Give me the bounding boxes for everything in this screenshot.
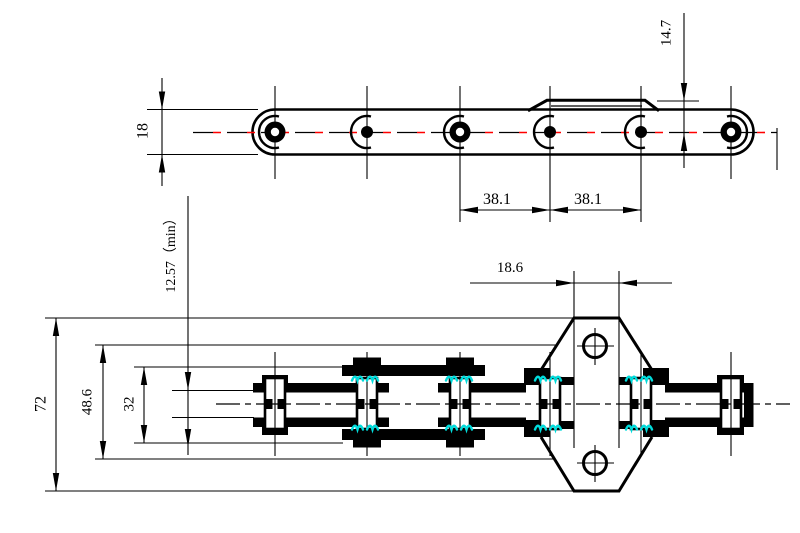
dimension-18.6: 18.6 — [470, 260, 672, 286]
dimension-12.57-min: 12.57（min） — [163, 196, 191, 455]
dim-label-38.1-b: 38.1 — [574, 191, 602, 208]
arrow-up-icon — [53, 318, 59, 336]
dim-label-14.7: 14.7 — [658, 19, 674, 46]
arrow-down-icon — [185, 429, 191, 447]
arrow-left-icon — [550, 207, 568, 213]
arrow-left-icon — [619, 280, 637, 286]
side-view: 18 14.7 38.1 38.1 — [135, 13, 777, 222]
dimension-48.6: 48.6 — [79, 345, 106, 459]
dim-label-18: 18 — [135, 123, 152, 139]
arrow-up-icon — [141, 367, 147, 385]
dim-label-18.6: 18.6 — [497, 260, 524, 276]
dim-label-48.6: 48.6 — [79, 388, 95, 415]
technical-drawing: 18 14.7 38.1 38.1 — [0, 0, 800, 533]
dimension-72: 72 — [33, 318, 60, 491]
arrow-up-icon — [100, 345, 106, 363]
arrow-down-icon — [141, 425, 147, 443]
arrow-right-icon — [532, 207, 550, 213]
dim-label-32: 32 — [121, 397, 137, 412]
arrow-left-icon — [460, 207, 478, 213]
arrow-up-icon — [159, 155, 165, 173]
chain-plan-links — [253, 358, 754, 448]
arrow-down-icon — [100, 441, 106, 459]
arrow-up-icon — [681, 133, 687, 151]
arrow-down-icon — [185, 372, 191, 390]
dimension-18: 18 — [135, 78, 166, 186]
arrow-right-icon — [623, 207, 641, 213]
dimension-14.7: 14.7 — [658, 13, 687, 168]
arrow-down-icon — [159, 92, 165, 110]
arrow-right-icon — [556, 280, 574, 286]
plan-view: 72 48.6 32 12.57（min） 18.6 — [33, 196, 790, 491]
arrow-down-icon — [53, 473, 59, 491]
dim-label-12.57-min: 12.57（min） — [163, 211, 179, 292]
dimension-32: 32 — [121, 367, 147, 443]
dim-label-38.1-a: 38.1 — [483, 191, 511, 208]
drawing-canvas: 18 14.7 38.1 38.1 — [0, 0, 800, 533]
arrow-down-icon — [681, 83, 687, 101]
dim-label-72: 72 — [33, 396, 50, 412]
